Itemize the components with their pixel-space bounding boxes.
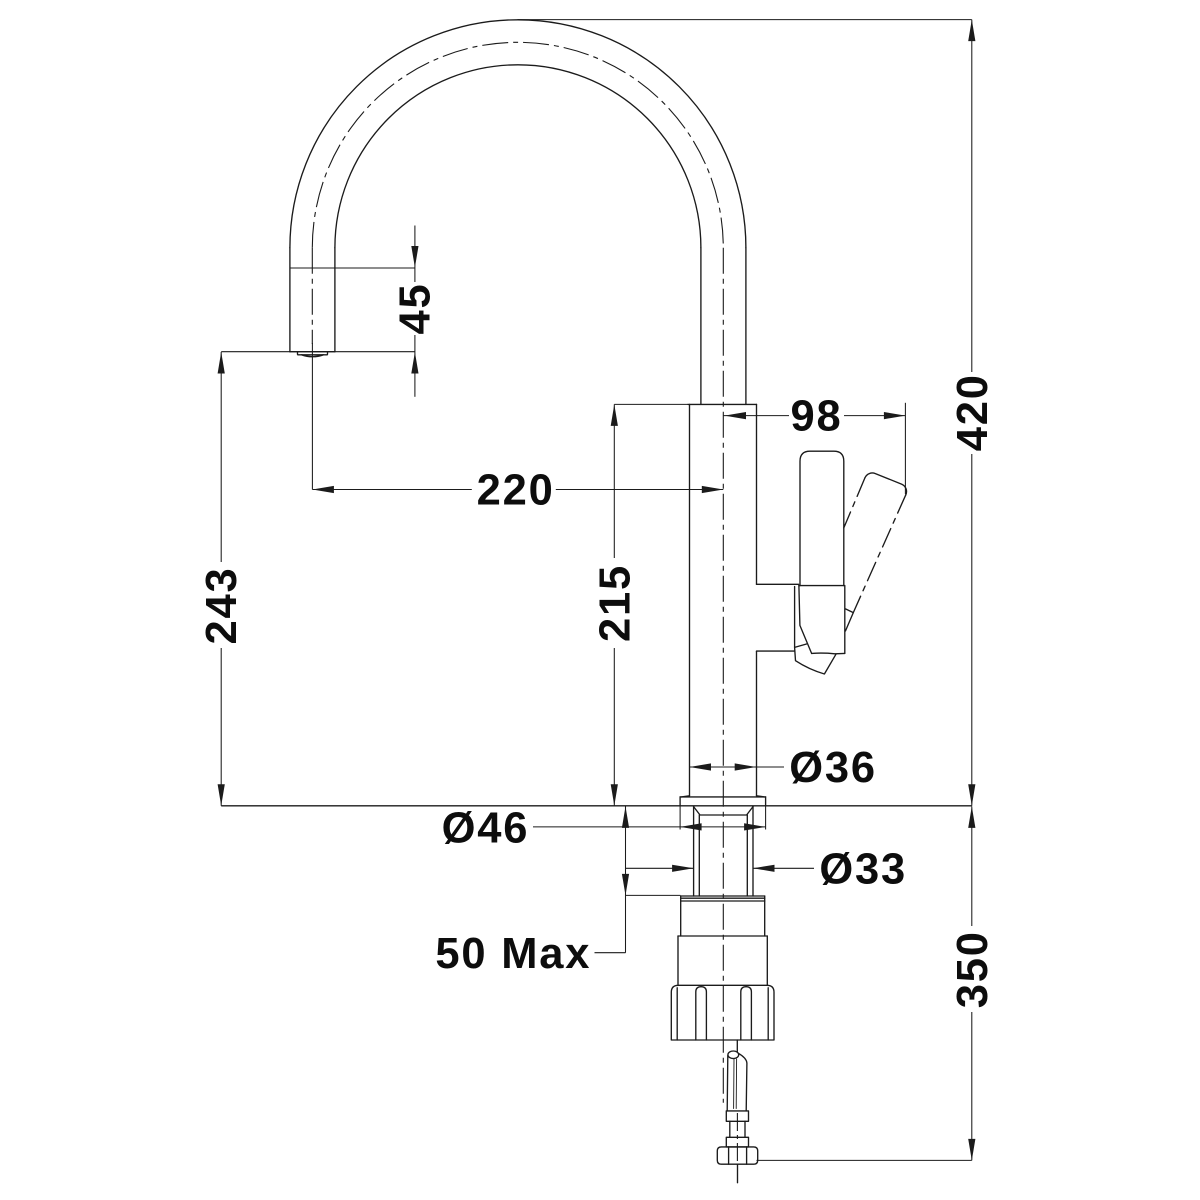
svg-text:243: 243 [198, 567, 246, 645]
svg-text:98: 98 [791, 393, 843, 441]
svg-text:Ø36: Ø36 [789, 744, 877, 792]
svg-text:Ø46: Ø46 [442, 804, 530, 852]
svg-text:350: 350 [949, 930, 997, 1008]
svg-text:220: 220 [477, 466, 555, 514]
svg-text:50 Max: 50 Max [435, 930, 591, 978]
svg-text:45: 45 [392, 283, 440, 335]
svg-text:420: 420 [949, 373, 997, 451]
svg-text:Ø33: Ø33 [819, 845, 907, 893]
svg-text:215: 215 [591, 564, 639, 642]
